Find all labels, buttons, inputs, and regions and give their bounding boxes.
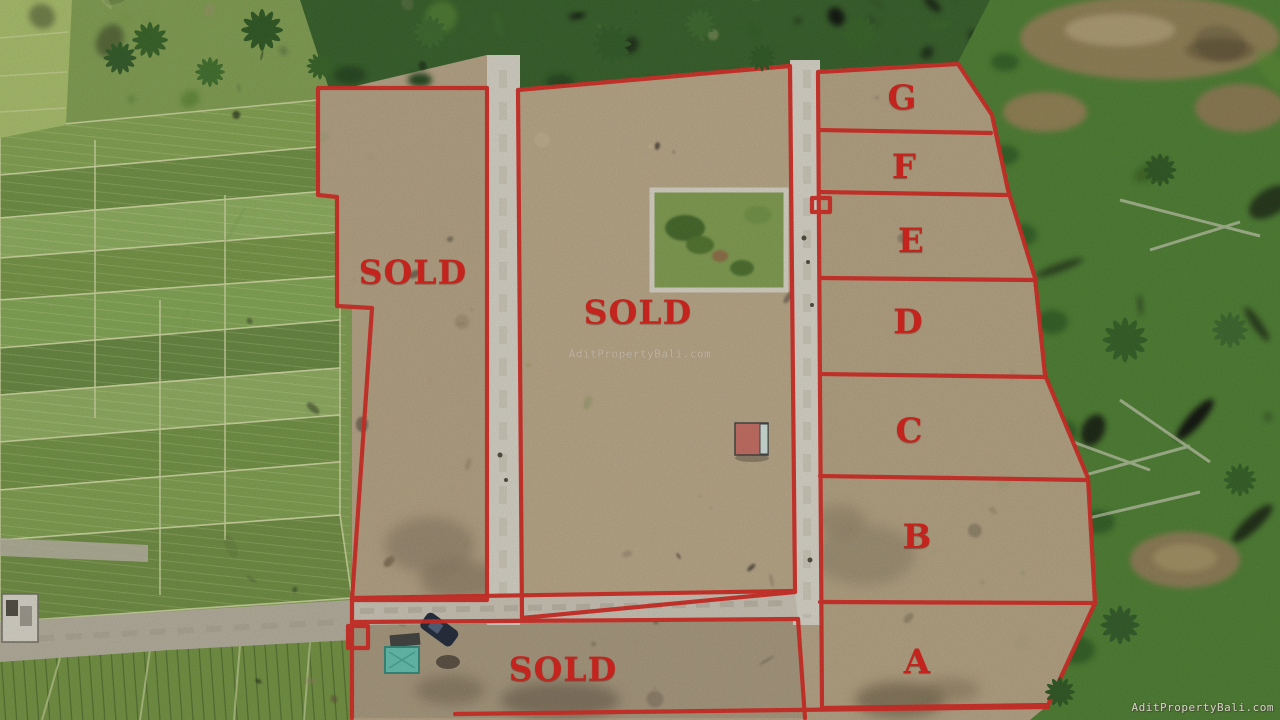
plot-label-f: F: [892, 147, 916, 187]
watermark-center: AditPropertyBali.com: [569, 348, 711, 361]
plot-bottom-sold-label: SOLD: [509, 650, 617, 689]
aerial-photo-scene: SOLD SOLD SOLD G F E D C B A AditPropert…: [0, 0, 1280, 720]
plot-label-c: C: [895, 411, 922, 451]
plot-label-a: A: [904, 642, 930, 682]
plot-label-b: B: [903, 517, 932, 557]
plot-label-e: E: [898, 221, 924, 261]
plot-label-g: G: [887, 78, 916, 118]
watermark-corner: AditPropertyBali.com: [1132, 701, 1274, 714]
plot-label-d: D: [893, 302, 922, 342]
plot-center-sold-label: SOLD: [584, 293, 692, 332]
plot-left-sold-label: SOLD: [359, 253, 467, 292]
